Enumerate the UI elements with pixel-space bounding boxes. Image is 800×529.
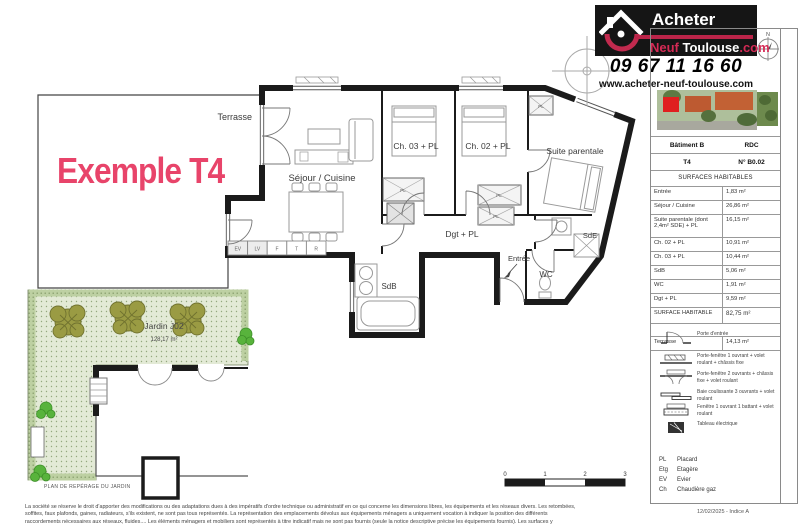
table-header-row-2: T4 N° B0.02	[651, 154, 780, 171]
label-ch02: Ch. 02 + PL	[465, 141, 510, 151]
table-row: Séjour / Cuisine26,86 m²	[651, 201, 780, 215]
table-header-row-1: Bâtiment B RDC	[651, 137, 780, 154]
type-label: T4	[651, 159, 723, 166]
garden-area-label: 128,17 m²	[150, 337, 177, 343]
plan-sheet: Jardin J02 128,17 m²	[0, 0, 800, 529]
abbrev-row: EtgEtagère	[659, 467, 698, 473]
abbrev-row: ChChaudière gaz	[659, 487, 716, 493]
closet-label-suite: PL	[538, 104, 544, 109]
bed-suite	[544, 158, 603, 212]
table-row: Suite parentale (dont 2,4m² SDE) + PL16,…	[651, 215, 780, 238]
table-row: WC1,91 m²	[651, 280, 780, 294]
svg-text:1: 1	[543, 472, 547, 478]
disclaimer-line: soffites, faux plafonds, gaines, radiate…	[25, 511, 655, 518]
building-label: Bâtiment B	[651, 142, 723, 149]
label-ch03: Ch. 03 + PL	[393, 141, 438, 151]
svg-text:2: 2	[583, 472, 587, 478]
french-window-1-icon	[659, 351, 693, 368]
label-sdb: SdB	[381, 282, 396, 291]
window-1-leaf-icon	[659, 402, 693, 419]
electrical-panel-icon	[659, 419, 693, 436]
label-sejour: Séjour / Cuisine	[288, 173, 355, 184]
disclaimer-line: La société se réserve le droit d'apporte…	[25, 504, 655, 511]
label-entree: Entrée	[508, 254, 530, 263]
svg-text:T: T	[295, 247, 298, 253]
reperage-building	[90, 364, 248, 498]
surfaces-table: Bâtiment B RDC T4 N° B0.02 SURFACES HABI…	[651, 136, 780, 351]
svg-text:F: F	[275, 247, 278, 253]
lot-number: N° B0.02	[723, 159, 780, 166]
revision-date: 12/02/2025 - Indice A	[650, 509, 796, 515]
info-panel: Bâtiment B RDC T4 N° B0.02 SURFACES HABI…	[650, 28, 798, 504]
label-sde: SdE	[583, 231, 597, 240]
legend-item: Tableau électrique	[659, 419, 777, 436]
example-type-label: Exemple T4	[57, 150, 224, 192]
reperage-title: PLAN DE REPÉRAGE DU JARDIN	[44, 484, 130, 490]
closet-label-ch03: PL	[400, 188, 406, 193]
logo-house-icon	[599, 8, 647, 54]
table-section-title: SURFACES HABITABLES	[651, 171, 780, 187]
garden-name-label: Jardin J02	[144, 321, 183, 331]
legend-item: Porte-fenêtre 2 ouvrants + châssis fixe …	[659, 369, 777, 386]
closet-label-corridor-2: PL	[493, 214, 499, 219]
svg-text:LV: LV	[255, 247, 261, 253]
scale-bar: 0 1 2 3	[503, 472, 627, 486]
wc-fixtures	[539, 276, 551, 298]
table-total-row: SURFACE HABITABLE82,75 m²	[651, 308, 780, 324]
abbrev-row: EVEvier	[659, 477, 691, 483]
french-window-2-icon	[659, 369, 693, 386]
label-dgt: Dgt + PL	[445, 229, 479, 239]
label-wc: WC	[539, 270, 553, 279]
legend-item: Fenêtre 1 ouvrant 1 battant + volet roul…	[659, 402, 777, 419]
legend-item: Porte d'entrée	[659, 329, 777, 346]
svg-text:3: 3	[623, 472, 627, 478]
label-suite: Suite parentale	[546, 146, 603, 156]
table-row: Entrée1,83 m²	[651, 187, 780, 201]
floor-label: RDC	[723, 142, 780, 149]
garden-utility-box	[31, 427, 44, 457]
closet-label-corridor-1: PL	[496, 193, 502, 198]
table-row: Ch. 03 + PL10,44 m²	[651, 252, 780, 266]
svg-text:R: R	[314, 247, 318, 253]
label-terrasse: Terrasse	[217, 112, 252, 122]
entry-door-icon	[659, 329, 693, 346]
table-row: Dgt + PL9,59 m²	[651, 294, 780, 308]
table-row: SdB5,06 m²	[651, 266, 780, 280]
table-row: Ch. 02 + PL10,91 m²	[651, 238, 780, 252]
svg-text:0: 0	[503, 472, 507, 478]
svg-text:EV: EV	[234, 247, 241, 253]
legal-disclaimer: La société se réserve le droit d'apporte…	[25, 504, 655, 526]
legend-item: Porte-fenêtre 1 ouvrant + volet roulant …	[659, 351, 777, 368]
abbrev-row: PLPlacard	[659, 457, 697, 463]
disclaimer-line: raccordements nécessaires aux réseaux, f…	[25, 519, 655, 526]
panel-divider	[780, 29, 781, 503]
logo-text-line1: Acheter	[652, 10, 715, 30]
